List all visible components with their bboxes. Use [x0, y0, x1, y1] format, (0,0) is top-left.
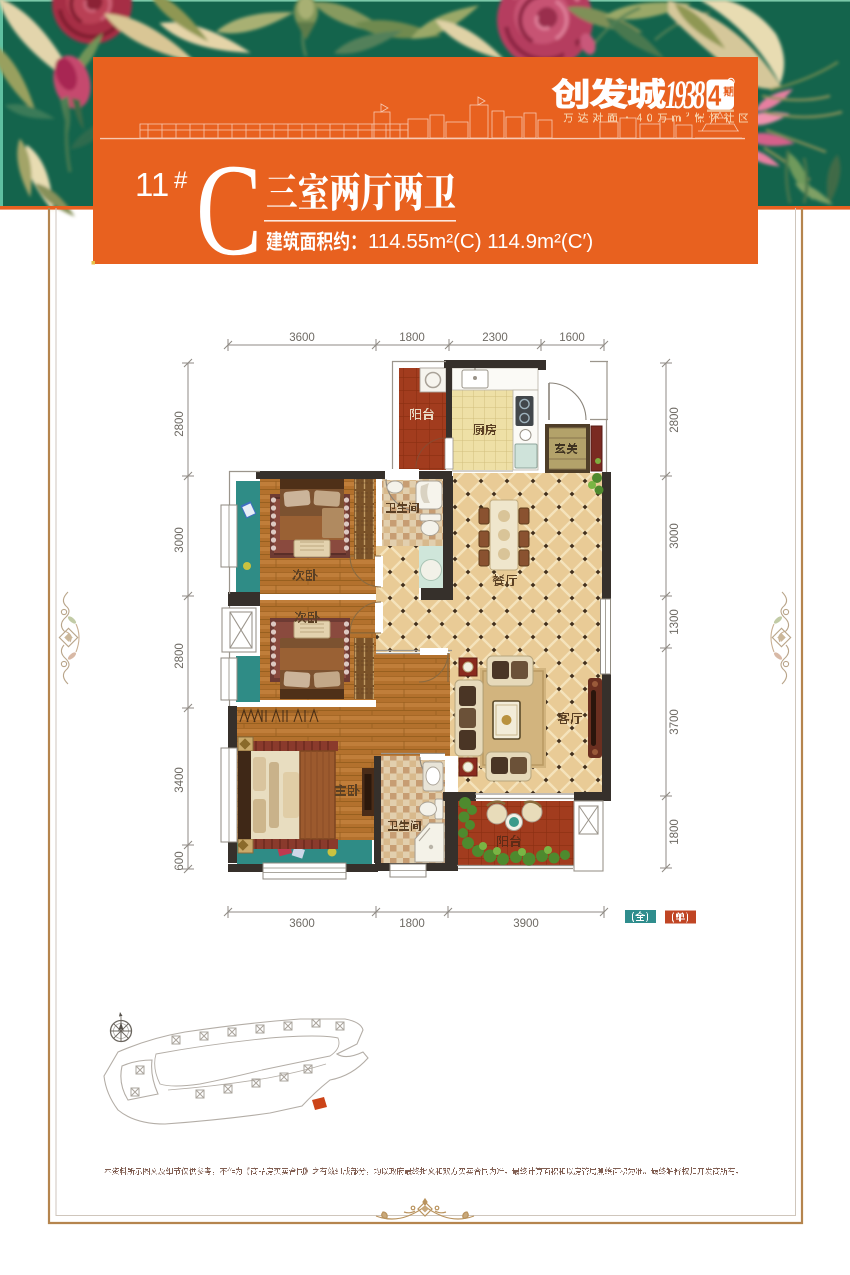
- svg-text:600: 600: [174, 851, 186, 870]
- svg-text:3600: 3600: [289, 918, 315, 930]
- svg-text:1800: 1800: [669, 819, 681, 845]
- svg-text:1800: 1800: [399, 332, 425, 344]
- svg-text:1600: 1600: [559, 332, 585, 344]
- svg-text:114.55m²(C) 114.9m²(C′): 114.55m²(C) 114.9m²(C′): [368, 230, 593, 253]
- svg-text:C: C: [196, 137, 262, 283]
- svg-text:1938: 1938: [665, 73, 706, 117]
- svg-text:2800: 2800: [669, 407, 681, 433]
- svg-text:2800: 2800: [174, 643, 186, 669]
- svg-text:4: 4: [708, 79, 721, 112]
- svg-text:1300: 1300: [669, 609, 681, 635]
- svg-text:3000: 3000: [669, 523, 681, 549]
- svg-text:3600: 3600: [289, 332, 315, 344]
- svg-text:3700: 3700: [669, 709, 681, 735]
- svg-text:3000: 3000: [174, 527, 186, 553]
- svg-text:11: 11: [135, 166, 169, 203]
- svg-text:#: #: [174, 167, 188, 194]
- svg-text:3400: 3400: [174, 767, 186, 793]
- svg-text:2300: 2300: [482, 332, 508, 344]
- svg-text:3900: 3900: [513, 918, 539, 930]
- svg-text:2800: 2800: [174, 411, 186, 437]
- svg-text:1800: 1800: [399, 918, 425, 930]
